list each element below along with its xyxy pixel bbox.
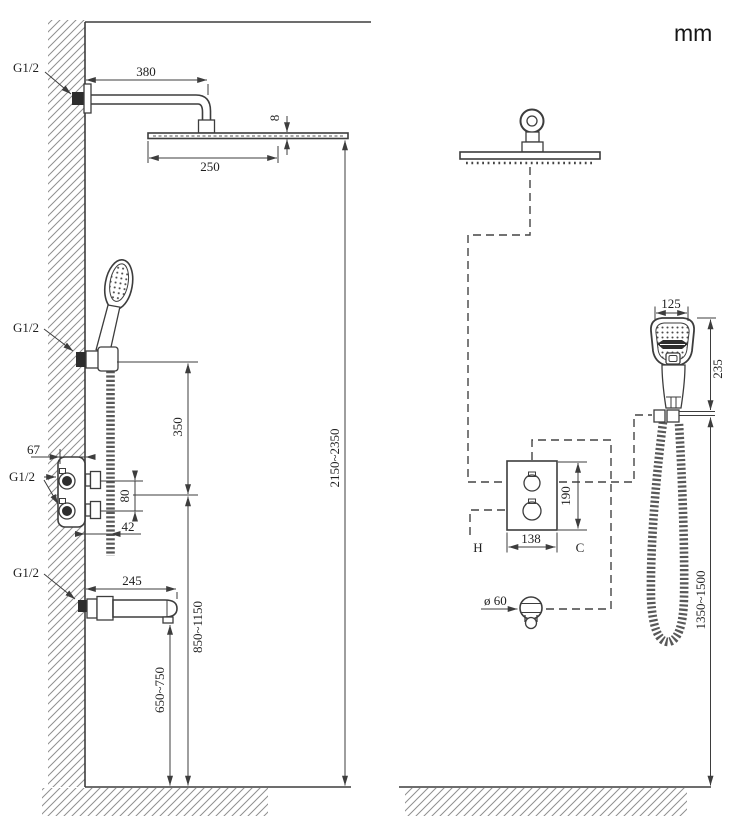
floor-section-left	[42, 787, 351, 816]
hand-shower-bracket-left	[98, 347, 118, 371]
dim-hand-width: 125	[661, 296, 681, 311]
pipe-hand-shower-supply	[559, 415, 652, 482]
unit-label: mm	[674, 20, 712, 46]
mixer-valve-left	[58, 457, 101, 527]
valve-knob-top	[524, 475, 540, 491]
head-ring-connector	[521, 110, 544, 133]
thread-label-arm: G1/2	[13, 60, 39, 75]
dim-arm-length: 380	[136, 64, 156, 79]
dim-valve-depth: 67	[27, 442, 41, 457]
dim-valve-height: 850~1150	[190, 601, 205, 653]
hand-shower-right	[651, 318, 694, 642]
cold-port-label: C	[576, 540, 585, 555]
mixer-knob-bottom	[62, 506, 72, 516]
dim-valve-offset: 42	[122, 519, 135, 534]
floor-section-right	[399, 787, 711, 816]
thread-label-hand-shower: G1/2	[13, 320, 39, 335]
dim-hand-to-valve: 350	[170, 417, 185, 437]
wall-connection-hand-shower	[76, 352, 86, 367]
dim-outlet-diameter: ø 60	[484, 593, 507, 608]
dim-hand-height: 235	[710, 359, 725, 379]
dim-head-thickness: 8	[267, 115, 282, 122]
dim-valve-box-width: 138	[521, 531, 541, 546]
wall-connection-arm	[72, 92, 84, 105]
valve-knob-bottom	[523, 502, 541, 520]
spout-outlet	[163, 617, 173, 623]
dim-valve-box-height: 190	[558, 486, 573, 506]
pipe-head-supply	[468, 167, 530, 482]
mode-button	[666, 353, 680, 364]
dim-spout-length: 245	[122, 573, 142, 588]
arm-connector-nut	[199, 120, 215, 133]
rain-shower-head-right	[460, 110, 600, 164]
extension-lines	[60, 84, 716, 599]
shower-arm	[72, 84, 215, 133]
hot-port-label: H	[473, 540, 482, 555]
dimension-lines	[31, 80, 711, 786]
mixer-knob-top	[62, 476, 72, 486]
concealed-piping	[468, 167, 652, 609]
dim-head-height: 2150~2350	[327, 428, 342, 487]
diagram-canvas: mm G1/2 G1/2 G1/2 G1/2 380 8 250 67 80 4…	[0, 0, 736, 833]
valve-box-right	[507, 461, 557, 530]
wall-outlet-elbow	[520, 597, 542, 629]
thread-label-valve: G1/2	[9, 469, 35, 484]
leader-lines	[44, 72, 518, 609]
hand-shower-bracket-right	[654, 410, 665, 422]
tub-spout	[78, 597, 177, 624]
rain-shower-head-left	[148, 133, 348, 139]
dim-knob-spacing: 80	[117, 490, 132, 503]
installation-diagram: mm G1/2 G1/2 G1/2 G1/2 380 8 250 67 80 4…	[0, 0, 736, 833]
dim-head-width: 250	[200, 159, 220, 174]
wall-connection-spout	[78, 600, 87, 612]
pipe-hot-inlet	[470, 510, 505, 538]
thread-label-spout: G1/2	[13, 565, 39, 580]
dim-spout-height: 650~750	[152, 667, 167, 713]
shower-hose-right	[651, 422, 684, 642]
dim-hose-height: 1350~1500	[693, 570, 708, 629]
